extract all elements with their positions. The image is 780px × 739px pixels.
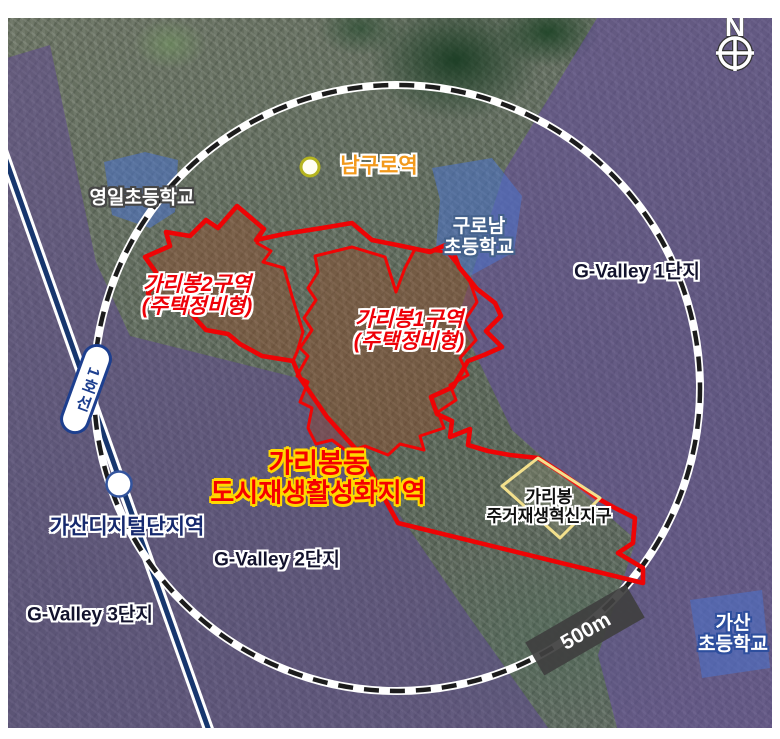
namguro-station-label: 남구로역 [340, 154, 417, 177]
zone2-label-line1: 가리봉2구역 [143, 273, 251, 296]
zone1-label-line2: (주택정비형) [354, 330, 465, 353]
district-title: 가리봉동 도시재생활성화지역 [210, 449, 425, 506]
innovation-label-line2: 주거재생혁신지구 [486, 506, 611, 525]
gasan-school-line1: 가산 [716, 613, 751, 634]
satellite-map: 500m N 남구로역 영일초등학교 구로남 초등학교 [8, 18, 772, 728]
guronam-school-line2: 초등학교 [444, 237, 514, 258]
gasan-digital-station-dot-icon [107, 472, 132, 497]
gvalley2-label: G-Valley 2단지 [214, 551, 340, 572]
compass-north-label: N [725, 18, 745, 42]
metro-line-casing [8, 135, 212, 728]
gvalley3-label: G-Valley 3단지 [27, 606, 153, 627]
innovation-district-label: 가리봉 주거재생혁신지구 [486, 488, 611, 525]
namguro-station-dot-icon [301, 158, 319, 176]
zone2-label: 가리봉2구역 (주택정비형) [142, 274, 253, 318]
gasan-digital-station-label: 가산디지털단지역 [50, 515, 205, 538]
guronam-school-label: 구로남 초등학교 [444, 217, 514, 259]
guronam-school-line1: 구로남 [453, 216, 505, 237]
innovation-label-line1: 가리봉 [526, 487, 573, 506]
map-world: 500m N 남구로역 영일초등학교 구로남 초등학교 [8, 18, 772, 728]
gasan-school-label: 가산 초등학교 [698, 614, 768, 656]
gvalley1-label: G-Valley 1단지 [574, 263, 700, 284]
map-figure: 500m N 남구로역 영일초등학교 구로남 초등학교 [0, 0, 780, 739]
zone1-label-line1: 가리봉1구역 [355, 308, 463, 331]
scale-bar: 500m [525, 585, 644, 676]
district-title-line2: 도시재생활성화지역 [210, 479, 425, 507]
zone1-label: 가리봉1구역 (주택정비형) [354, 309, 465, 353]
yeongil-school-label: 영일초등학교 [90, 189, 195, 210]
zone2-label-line2: (주택정비형) [142, 295, 253, 318]
compass-icon: N [716, 18, 754, 71]
gasan-school-line2: 초등학교 [698, 634, 768, 655]
district-title-line1: 가리봉동 [210, 449, 425, 478]
